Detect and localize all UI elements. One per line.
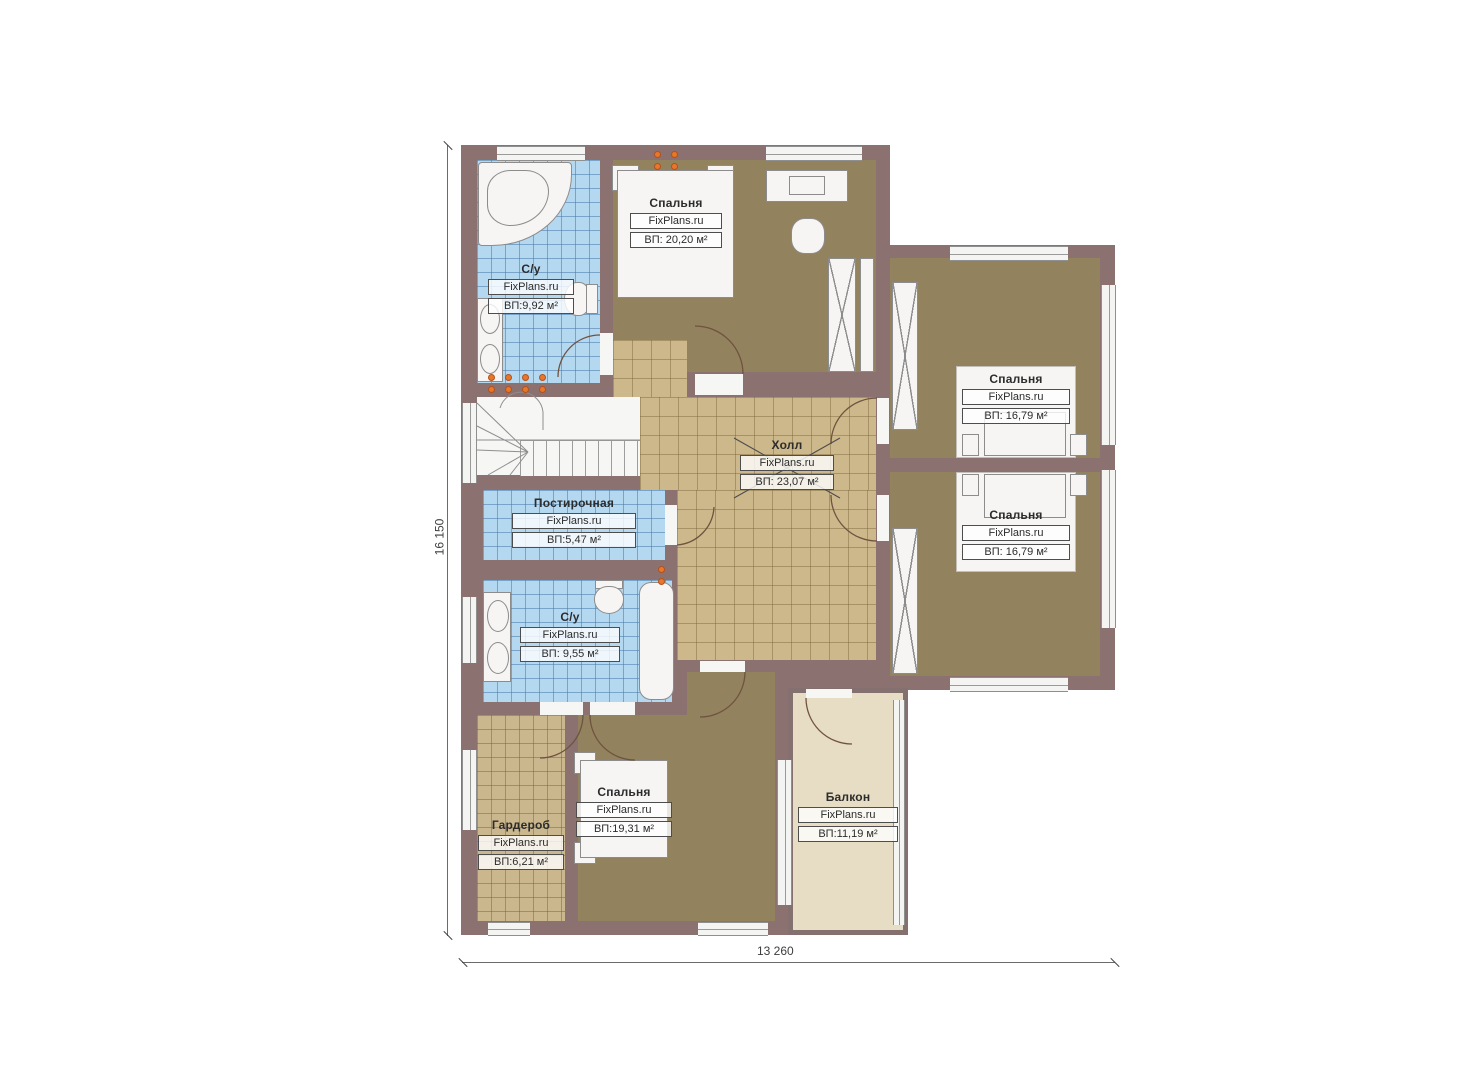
radiator-dot [522,374,529,381]
radiator-dot [488,386,495,393]
watermark: FixPlans.ru [478,835,564,851]
computer [789,176,825,195]
room-area: ВП: 9,55 м² [520,646,620,662]
room-bedroom-bottom-floor-upper [687,672,775,717]
nightstand [1070,474,1087,496]
room-label-bedroom-top: Спальня FixPlans.ru ВП: 20,20 м² [630,196,722,248]
radiator-dot [488,374,495,381]
room-name: Балкон [798,790,898,804]
window [766,146,862,161]
room-area: ВП:11,19 м² [798,826,898,842]
floor-plan: С/у FixPlans.ru ВП:9,92 м² Спальня FixPl… [0,0,1474,1080]
nightstand [962,474,979,496]
room-name: Спальня [630,196,722,210]
room-area: ВП:5,47 м² [512,532,636,548]
nightstand [1070,434,1087,456]
watermark: FixPlans.ru [576,802,672,818]
room-hall-floor-lower [677,490,876,660]
room-label-bedroom-right-bottom: Спальня FixPlans.ru ВП: 16,79 м² [962,508,1070,560]
room-name: Спальня [576,785,672,799]
watermark: FixPlans.ru [520,627,620,643]
watermark: FixPlans.ru [740,455,834,471]
dimension-tick [443,141,452,150]
room-label-balcony: Балкон FixPlans.ru ВП:11,19 м² [798,790,898,842]
room-name: С/у [520,610,620,624]
radiator-dot [505,374,512,381]
room-label-bathroom-bottom: С/у FixPlans.ru ВП: 9,55 м² [520,610,620,662]
dimension-line-bottom [462,962,1115,963]
nightstand [962,434,979,456]
sink [487,600,509,632]
dimension-label-bottom: 13 260 [757,944,794,958]
room-name: Спальня [962,508,1070,522]
radiator-dot [671,151,678,158]
window [950,677,1068,692]
room-name: Холл [740,438,834,452]
room-label-hall: Холл FixPlans.ru ВП: 23,07 м² [740,438,834,490]
room-name: С/у [488,262,574,276]
room-area: ВП: 16,79 м² [962,408,1070,424]
watermark: FixPlans.ru [962,525,1070,541]
room-area: ВП:19,31 м² [576,821,672,837]
radiator-dot [658,566,665,573]
window [1101,285,1116,445]
room-area: ВП: 16,79 м² [962,544,1070,560]
room-label-bathroom-top: С/у FixPlans.ru ВП:9,92 м² [488,262,574,314]
door-opening [600,333,613,375]
wardrobe-symbol [892,528,918,674]
stairs-flight [520,440,640,476]
radiator-dot [671,163,678,170]
radiator-dots [488,374,546,393]
door-opening [700,661,745,672]
door-opening [806,689,852,698]
room-hall-floor-upper [613,340,687,400]
towel-heater-dots [658,566,665,585]
room-area: ВП:9,92 м² [488,298,574,314]
toilet-tank [586,284,598,314]
office-chair [791,218,825,254]
window [950,246,1068,261]
radiator-dot [539,374,546,381]
window [1101,470,1116,628]
sink [487,642,509,674]
radiator-dot [505,386,512,393]
window [462,750,477,830]
radiator-dots [654,151,678,170]
room-label-bedroom-right-top: Спальня FixPlans.ru ВП: 16,79 м² [962,372,1070,424]
watermark: FixPlans.ru [962,389,1070,405]
window [462,597,477,663]
room-label-wardrobe: Гардероб FixPlans.ru ВП:6,21 м² [478,818,564,870]
window [497,146,585,161]
window [488,922,530,936]
door-opening [590,702,635,715]
wardrobe-symbol [828,258,856,372]
door-opening [540,702,583,715]
room-name: Гардероб [478,818,564,832]
watermark: FixPlans.ru [630,213,722,229]
door-opening [877,398,889,444]
watermark: FixPlans.ru [488,279,574,295]
radiator-dot [539,386,546,393]
room-area: ВП: 20,20 м² [630,232,722,248]
room-name: Постирочная [512,496,636,510]
dimension-label-left: 16 150 [432,519,446,556]
door-opening [665,505,677,545]
window [698,922,768,936]
dimension-line-left [447,145,448,936]
room-area: ВП: 23,07 м² [740,474,834,490]
room-label-bedroom-bottom: Спальня FixPlans.ru ВП:19,31 м² [576,785,672,837]
radiator-dot [522,386,529,393]
bathtub [639,582,674,700]
window [777,760,792,905]
door-opening [877,495,889,541]
door-opening [695,374,743,395]
dimension-tick [443,931,452,940]
room-label-laundry: Постирочная FixPlans.ru ВП:5,47 м² [512,496,636,548]
radiator-dot [658,578,665,585]
watermark: FixPlans.ru [798,807,898,823]
radiator-dot [654,163,661,170]
watermark: FixPlans.ru [512,513,636,529]
room-area: ВП:6,21 м² [478,854,564,870]
wardrobe-symbol [860,258,874,372]
room-name: Спальня [962,372,1070,386]
sink [480,344,500,374]
window [462,403,477,483]
wardrobe-symbol [892,282,918,430]
radiator-dot [654,151,661,158]
